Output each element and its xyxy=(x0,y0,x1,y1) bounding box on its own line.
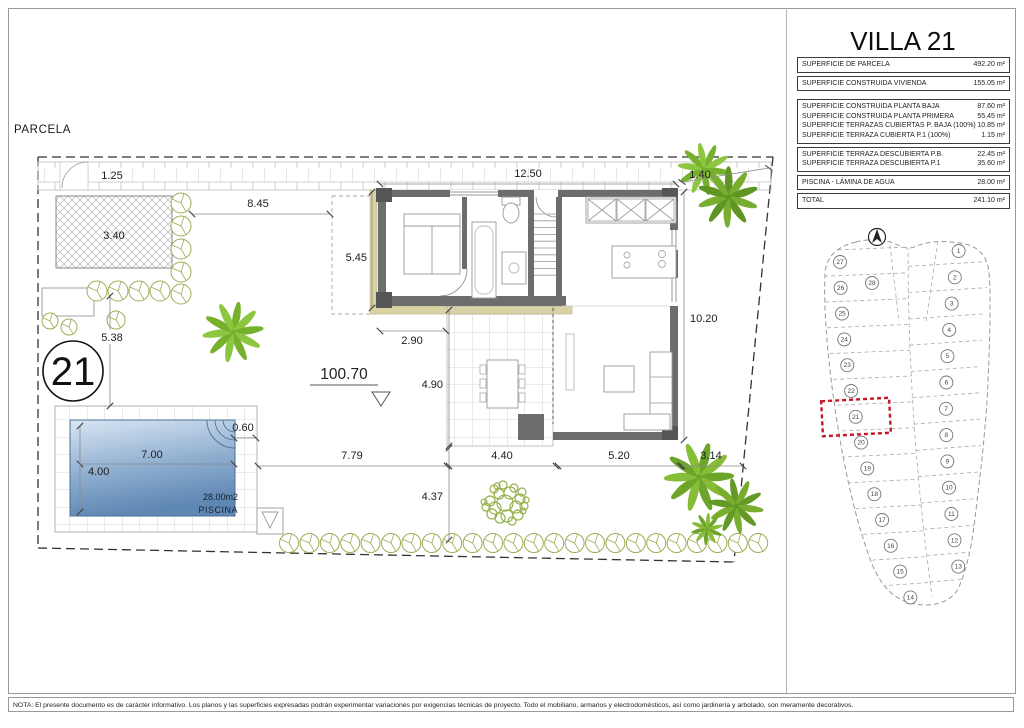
surface-label: SUPERFICIE TERRAZA CUBIERTA P.1 (100%) xyxy=(802,131,950,141)
surface-table-row: SUPERFICIE TERRAZA CUBIERTA P.1 (100%)1.… xyxy=(802,131,1005,141)
surface-value: 155.05 m² xyxy=(973,79,1005,89)
surface-label: SUPERFICIE CONSTRUIDA VIVIENDA xyxy=(802,79,926,89)
plan-sheet: 28.00m2 PISCINA 21 100.70 8.4512.501.405… xyxy=(0,0,1024,728)
surface-table-row: SUPERFICIE CONSTRUIDA VIVIENDA155.05 m² xyxy=(802,79,1005,89)
surface-label: SUPERFICIE TERRAZA DESCUBIERTA P.B. xyxy=(802,150,943,160)
surface-table-group: PISCINA - LÁMINA DE AGUA28.00 m² xyxy=(797,175,1010,191)
surface-table-row: SUPERFICIE TERRAZAS CUBIERTAS P. BAJA (1… xyxy=(802,121,1005,131)
surface-value: 87.60 m² xyxy=(977,102,1005,112)
surface-table-row: TOTAL241.10 m² xyxy=(802,196,1005,206)
page-title: VILLA 21 xyxy=(795,26,1011,57)
surface-value: 35.60 m² xyxy=(977,159,1005,169)
surface-value: 492.20 m² xyxy=(973,60,1005,70)
surface-table-group: SUPERFICIE CONSTRUIDA VIVIENDA155.05 m² xyxy=(797,76,1010,92)
surface-label: SUPERFICIE TERRAZAS CUBIERTAS P. BAJA (1… xyxy=(802,121,976,131)
surface-value: 10.85 m² xyxy=(977,121,1005,131)
surface-table-row: PISCINA - LÁMINA DE AGUA28.00 m² xyxy=(802,178,1005,188)
surface-table-group: TOTAL241.10 m² xyxy=(797,193,1010,209)
surface-table: SUPERFICIE DE PARCELA492.20 m²SUPERFICIE… xyxy=(797,57,1010,212)
surface-value: 241.10 m² xyxy=(973,196,1005,206)
surface-label: TOTAL xyxy=(802,196,824,206)
surface-value: 28.00 m² xyxy=(977,178,1005,188)
surface-table-row: SUPERFICIE DE PARCELA492.20 m² xyxy=(802,60,1005,70)
surface-label: PISCINA - LÁMINA DE AGUA xyxy=(802,178,895,188)
panel-divider xyxy=(786,8,787,694)
surface-value: 55.45 m² xyxy=(977,112,1005,122)
surface-table-group: SUPERFICIE CONSTRUIDA PLANTA BAJA87.60 m… xyxy=(797,99,1010,143)
surface-table-row: SUPERFICIE TERRAZA DESCUBIERTA P.B.22.45… xyxy=(802,150,1005,160)
surface-table-row: SUPERFICIE CONSTRUIDA PLANTA BAJA87.60 m… xyxy=(802,102,1005,112)
surface-label: SUPERFICIE CONSTRUIDA PLANTA BAJA xyxy=(802,102,940,112)
surface-value: 22.45 m² xyxy=(977,150,1005,160)
parcela-label: PARCELA xyxy=(14,124,71,136)
footer-note: NOTA: El presente documento es de caráct… xyxy=(8,697,1014,712)
surface-table-row: SUPERFICIE CONSTRUIDA PLANTA PRIMERA55.4… xyxy=(802,112,1005,122)
surface-value: 1.15 m² xyxy=(981,131,1005,141)
surface-table-group: SUPERFICIE DE PARCELA492.20 m² xyxy=(797,57,1010,73)
surface-label: SUPERFICIE TERRAZA DESCUBIERTA P.1 xyxy=(802,159,940,169)
surface-label: SUPERFICIE CONSTRUIDA PLANTA PRIMERA xyxy=(802,112,954,122)
surface-table-row: SUPERFICIE TERRAZA DESCUBIERTA P.135.60 … xyxy=(802,159,1005,169)
surface-label: SUPERFICIE DE PARCELA xyxy=(802,60,890,70)
surface-table-group: SUPERFICIE TERRAZA DESCUBIERTA P.B.22.45… xyxy=(797,147,1010,172)
